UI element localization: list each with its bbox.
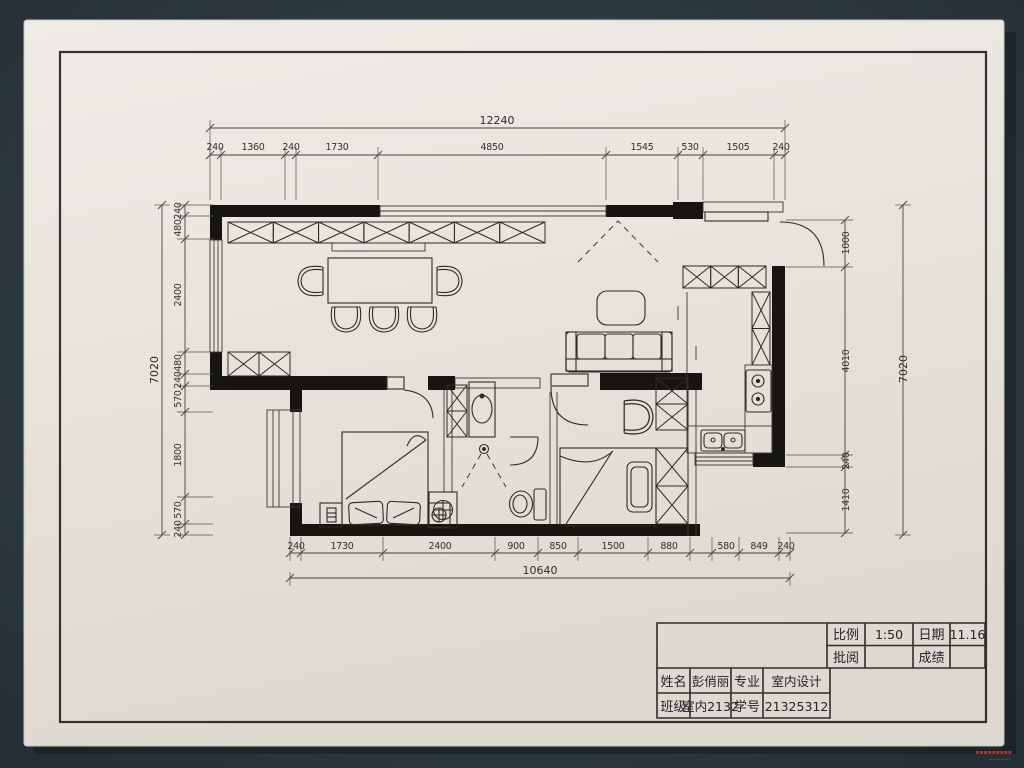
dim-label: 4850: [481, 142, 504, 153]
dim-label: 480: [173, 354, 184, 371]
dim-label: 850: [549, 541, 566, 552]
dim-label: 2400: [173, 283, 184, 306]
name-value: 彭俏丽: [692, 674, 730, 689]
major-value: 室内设计: [771, 674, 821, 689]
dim-label: 1500: [602, 541, 625, 552]
dim-label: 240: [206, 142, 223, 153]
date-label: 日期: [918, 628, 944, 643]
dim-label: 480: [173, 219, 184, 236]
watermark-glyphs: ▪▪▪▪▪▪▪▪▪: [975, 749, 1012, 756]
dim-label: 880: [660, 541, 677, 552]
dim-label: 1730: [331, 541, 354, 552]
dim-label: 2400: [429, 541, 452, 552]
review-label: 批阅: [833, 651, 859, 666]
dim-label: 530: [681, 142, 698, 153]
student-id-label: 学号: [734, 699, 760, 715]
dim-label: 240: [173, 520, 184, 537]
dim-label: 12240: [480, 114, 515, 127]
dim-label: 240: [777, 541, 794, 552]
scale-label: 比例: [833, 628, 859, 643]
student-id-value: 21325312: [765, 699, 829, 714]
dim-label: 10640: [523, 564, 558, 577]
dim-label: 570: [173, 390, 184, 407]
dim-label: 570: [173, 501, 184, 518]
dim-label: 7020: [897, 355, 910, 383]
date-value: 11.16: [950, 627, 986, 642]
dim-label: 7020: [148, 356, 161, 384]
photo-of-floor-plan: 12240 240 1360 240 1730 4850 1545 530 15…: [0, 0, 1024, 768]
scale-value: 1:50: [875, 627, 903, 642]
major-label: 专业: [734, 675, 760, 690]
grade-label: 成绩: [918, 651, 944, 666]
dim-label: 240: [772, 142, 789, 153]
dim-label: 240: [282, 142, 299, 153]
dim-label: 849: [750, 541, 767, 552]
dim-label: 1505: [727, 142, 750, 153]
dim-label: 240: [287, 541, 304, 552]
dim-label: 1800: [173, 443, 184, 466]
dim-label: 240: [841, 452, 852, 469]
watermark-subline: ·············: [989, 757, 1010, 763]
dim-label: 1000: [841, 231, 852, 254]
dim-label: 240: [173, 202, 184, 219]
dim-label: 240: [173, 371, 184, 388]
dim-label: 4010: [841, 349, 852, 372]
dim-label: 900: [507, 541, 524, 552]
dim-label: 1730: [326, 142, 349, 153]
dim-label: 1545: [631, 142, 654, 153]
name-label: 姓名: [660, 674, 686, 690]
dim-label: 580: [717, 541, 734, 552]
dim-label: 1410: [841, 488, 852, 511]
dim-label: 1360: [242, 142, 265, 153]
class-value: 室内2132: [682, 699, 739, 714]
